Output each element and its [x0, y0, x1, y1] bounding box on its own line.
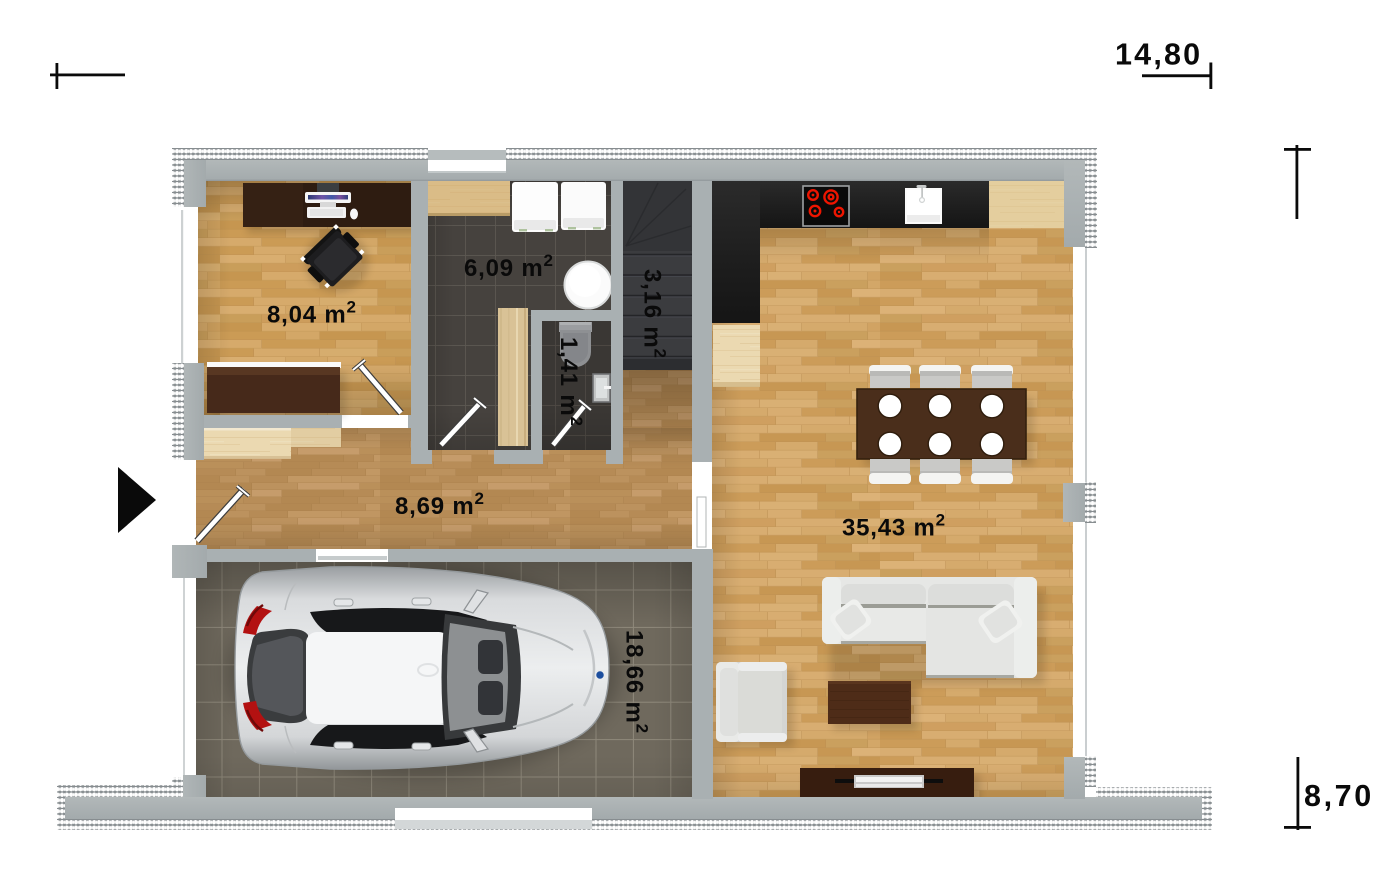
- svg-text:35,43 m2: 35,43 m2: [842, 511, 946, 542]
- svg-text:8,70: 8,70: [1304, 779, 1374, 813]
- svg-text:6,09 m2: 6,09 m2: [464, 251, 554, 282]
- svg-text:3,16 m2: 3,16 m2: [639, 269, 670, 359]
- svg-text:8,69 m2: 8,69 m2: [395, 489, 485, 520]
- svg-text:1,41 m2: 1,41 m2: [555, 337, 586, 427]
- svg-text:14,80: 14,80: [1115, 38, 1202, 72]
- svg-text:18,66 m2: 18,66 m2: [621, 630, 652, 734]
- svg-text:8,04 m2: 8,04 m2: [267, 298, 357, 329]
